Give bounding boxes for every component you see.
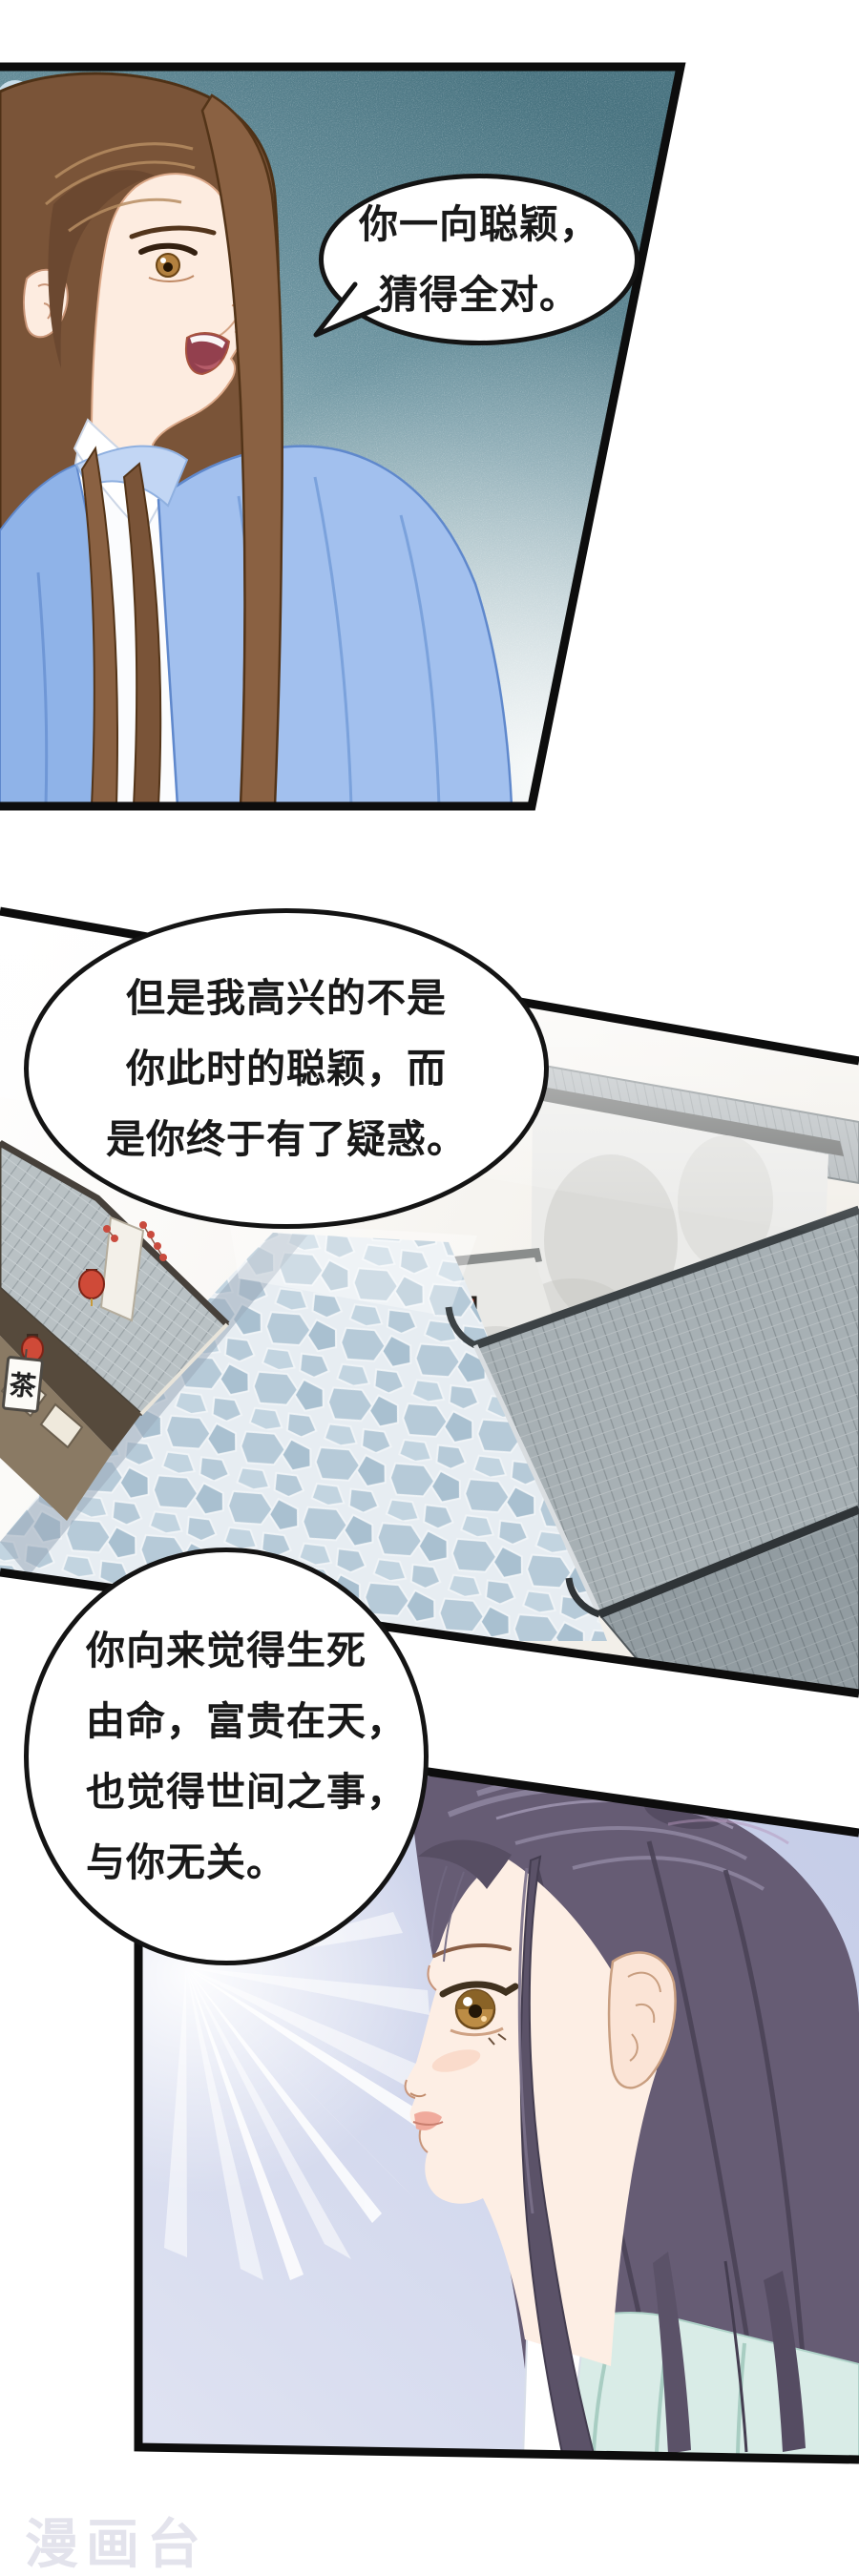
bubble-text-line: 由命，富贵在天， xyxy=(86,1686,407,1756)
speech-bubble-3: 你向来觉得生死 由命，富贵在天， 也觉得世间之事， 与你无关。 xyxy=(24,1548,429,1965)
speech-bubble-1: 你一向聪颖， 猜得全对。 xyxy=(319,174,639,345)
panel-1 xyxy=(0,57,697,816)
bubble-text-line: 你向来觉得生死 xyxy=(86,1615,367,1686)
watermark: 漫画台 xyxy=(25,2502,208,2576)
bubble-text-line: 但是我高兴的不是 xyxy=(126,963,447,1033)
tea-sign-character: 茶 xyxy=(8,1370,38,1402)
bubble-text-line: 是你终于有了疑惑。 xyxy=(106,1104,467,1174)
comic-page: 茶 xyxy=(0,0,859,2576)
panel-1-artwork xyxy=(0,57,697,816)
bubble-text-line: 你此时的聪颖，而 xyxy=(126,1033,447,1104)
bubble-text-line: 猜得全对。 xyxy=(379,260,579,330)
bubble-text-line: 你一向聪颖， xyxy=(359,189,599,260)
bubble-text-line: 与你无关。 xyxy=(86,1827,286,1898)
bubble-text-line: 也觉得世间之事， xyxy=(86,1756,407,1827)
speech-bubble-2: 但是我高兴的不是 你此时的聪颖，而 是你终于有了疑惑。 xyxy=(24,908,549,1229)
